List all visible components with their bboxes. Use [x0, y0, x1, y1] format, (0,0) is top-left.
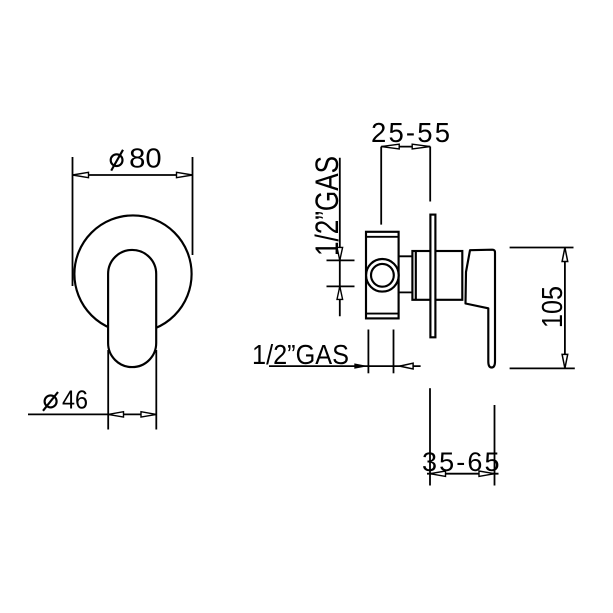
svg-text:46: 46 [62, 385, 88, 415]
svg-text:1/2”GAS: 1/2”GAS [309, 156, 345, 256]
svg-text:35-65: 35-65 [422, 447, 500, 477]
svg-text:80: 80 [129, 143, 162, 174]
svg-text:25-55: 25-55 [371, 117, 450, 148]
svg-text:105: 105 [537, 286, 569, 328]
